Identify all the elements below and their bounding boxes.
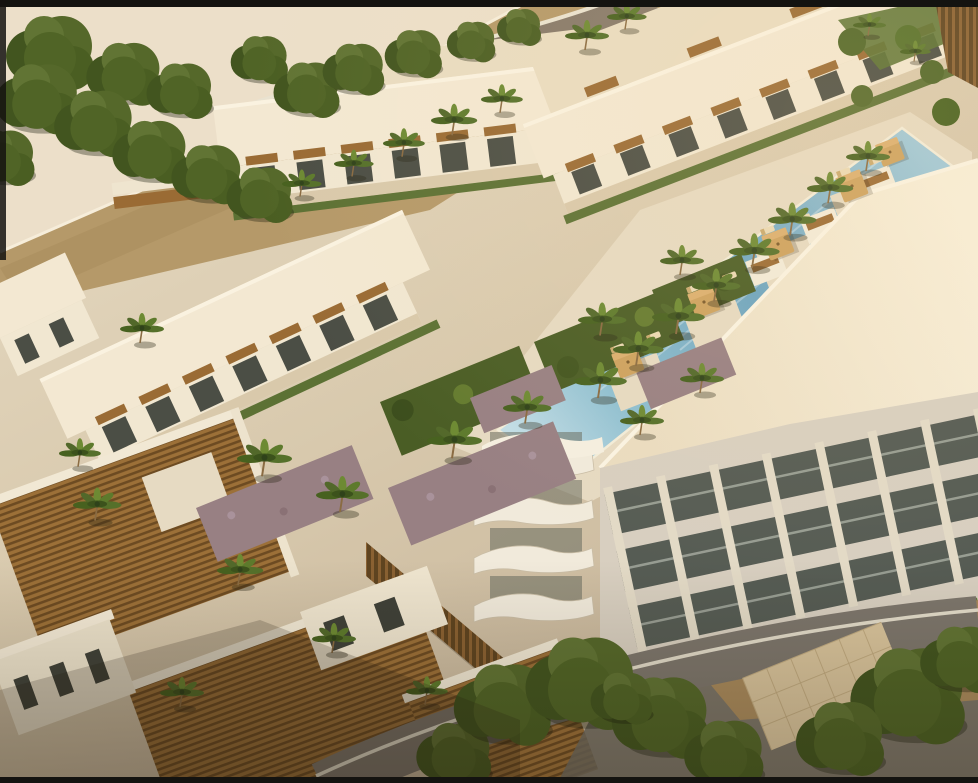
letterbox-left [0, 0, 6, 260]
letterbox-top [0, 0, 978, 7]
vignette-bottom [0, 560, 978, 783]
screenshot-stage: Aerial 3D architectural rendering of a c… [0, 0, 978, 783]
resort-aerial-render [0, 0, 978, 783]
letterbox-bottom [0, 777, 978, 783]
